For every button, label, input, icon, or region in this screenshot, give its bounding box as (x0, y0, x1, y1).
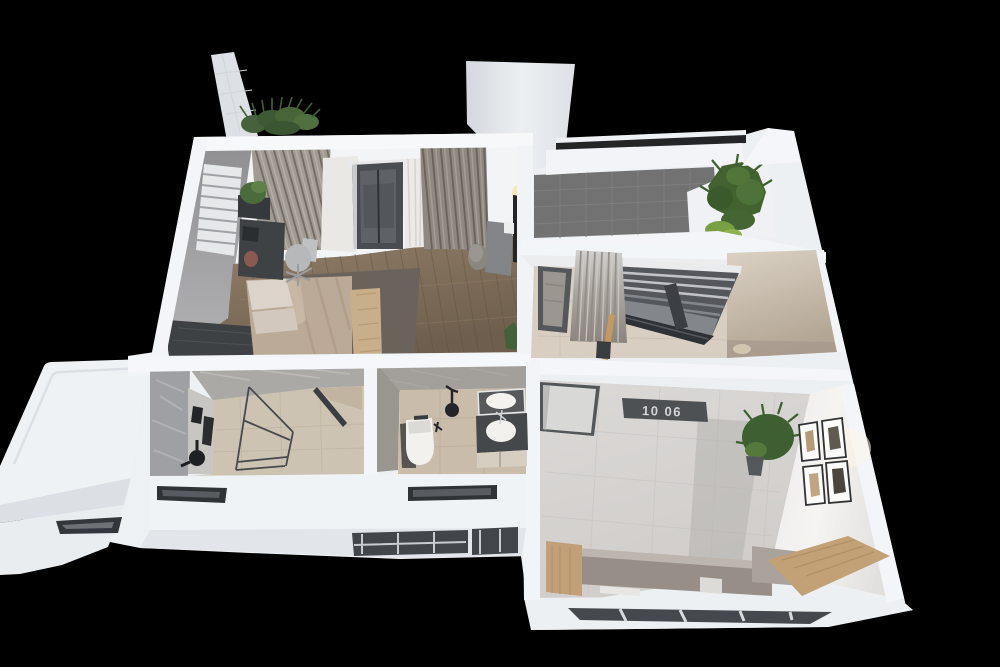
svg-text:10 06: 10 06 (642, 403, 683, 419)
